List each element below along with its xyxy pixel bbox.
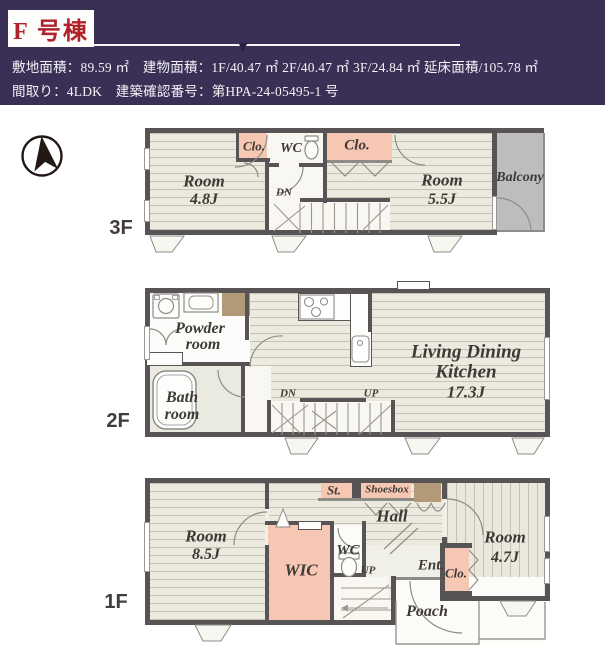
entrance-door-line — [396, 577, 440, 580]
room-size-label: 5.5J — [428, 192, 456, 208]
wall — [323, 133, 327, 203]
closet-label: Clo. — [243, 140, 265, 153]
vanity-niche — [146, 352, 183, 366]
hall-label: Hall — [376, 508, 407, 525]
wall — [145, 620, 395, 625]
balcony-label: Balcony — [496, 171, 543, 185]
wall — [368, 288, 372, 332]
closet-label: Clo. — [344, 139, 369, 154]
bath-room-label: room — [165, 407, 200, 423]
window-shutter-marks-2f — [285, 438, 544, 454]
window — [144, 200, 150, 222]
wall — [267, 400, 271, 437]
porch-label: Poach — [406, 604, 448, 620]
wall — [145, 432, 550, 437]
wall — [352, 479, 361, 500]
wic-label: WIC — [284, 562, 317, 579]
wall — [245, 288, 249, 340]
floor-tag-1f: 1F — [104, 592, 127, 612]
stairs-1f-floor — [334, 577, 391, 620]
window — [144, 522, 150, 572]
floorplan-flyer: F 号棟 敷地面積：89.59 ㎡ 建物面積：1F/40.47 ㎡ 2F/40.… — [0, 0, 605, 658]
window — [144, 326, 150, 360]
window — [544, 516, 550, 552]
window-shutter-marks-3f — [150, 236, 462, 252]
wall — [265, 545, 269, 620]
wall — [391, 400, 395, 437]
stairs-dn-label: DN — [276, 188, 292, 199]
wic-door — [298, 521, 322, 530]
wall — [442, 481, 447, 499]
powder-room-label: Powder — [175, 321, 225, 337]
wall — [145, 128, 544, 133]
wall — [269, 163, 279, 167]
wall — [145, 288, 550, 293]
stairs-up-label: UP — [361, 566, 376, 577]
building-name-box: F 号棟 — [8, 10, 94, 47]
window — [544, 337, 550, 400]
stairs-rail — [300, 398, 366, 402]
ldk-label: Kitchen — [435, 363, 496, 382]
stairs-rail — [300, 198, 390, 202]
spec-line-1: 敷地面積：89.59 ㎡ 建物面積：1F/40.47 ㎡ 2F/40.47 ㎡ … — [12, 56, 538, 76]
stairs-dn-label: DN — [280, 389, 296, 400]
wall — [330, 521, 334, 620]
room-size-label: 4.7J — [491, 550, 519, 566]
entrance-label: Ent. — [418, 559, 444, 574]
room-size-label: 8.5J — [192, 547, 220, 563]
stairs-3f-floor — [269, 200, 390, 230]
floor-tag-3f: 3F — [109, 218, 132, 238]
header-banner: F 号棟 敷地面積：89.59 ㎡ 建物面積：1F/40.47 ㎡ 2F/40.… — [0, 0, 605, 105]
header-rule-line — [94, 44, 460, 46]
window — [144, 148, 150, 170]
wall — [440, 591, 472, 596]
wall — [145, 478, 550, 483]
storage-label: St. — [327, 484, 341, 497]
room-label: Room — [183, 173, 225, 190]
building-name: F 号棟 — [13, 11, 89, 46]
wc-label: WC — [280, 142, 302, 156]
wall — [327, 160, 392, 163]
powder-room-label: room — [186, 337, 221, 353]
room-label: Room — [484, 529, 526, 546]
wall — [440, 596, 545, 601]
counter-niche — [397, 281, 430, 290]
stairs-2f-floor — [269, 401, 391, 432]
wall — [145, 230, 497, 235]
window — [544, 558, 550, 584]
counter-tan — [414, 481, 441, 502]
shoesbox-label: Shoesbox — [365, 485, 408, 496]
wall — [265, 162, 269, 202]
compass-icon — [23, 135, 62, 176]
spec-line-2: 間取り：4LDK 建築確認番号：第HPA-24-05495-1 号 — [12, 80, 339, 100]
wall — [241, 366, 245, 436]
balcony-door-opening — [492, 196, 497, 230]
room-size-label: 4.8J — [190, 192, 218, 208]
ldk-size-label: 17.3J — [447, 384, 485, 401]
room-label: Room — [185, 528, 227, 545]
wc-label: WC — [336, 544, 359, 559]
ldk-label: Living Dining — [411, 343, 521, 362]
stairs-up-label: UP — [364, 389, 379, 400]
wall — [391, 576, 396, 625]
closet-label: Clo. — [445, 567, 467, 580]
wall — [318, 498, 414, 501]
floor-tag-2f: 2F — [106, 411, 129, 431]
wall — [236, 133, 239, 160]
bath-room-label: Bath — [166, 390, 198, 406]
wall — [265, 483, 269, 509]
room-label: Room — [421, 172, 463, 189]
wall — [265, 198, 269, 235]
balcony-rail — [497, 230, 545, 232]
